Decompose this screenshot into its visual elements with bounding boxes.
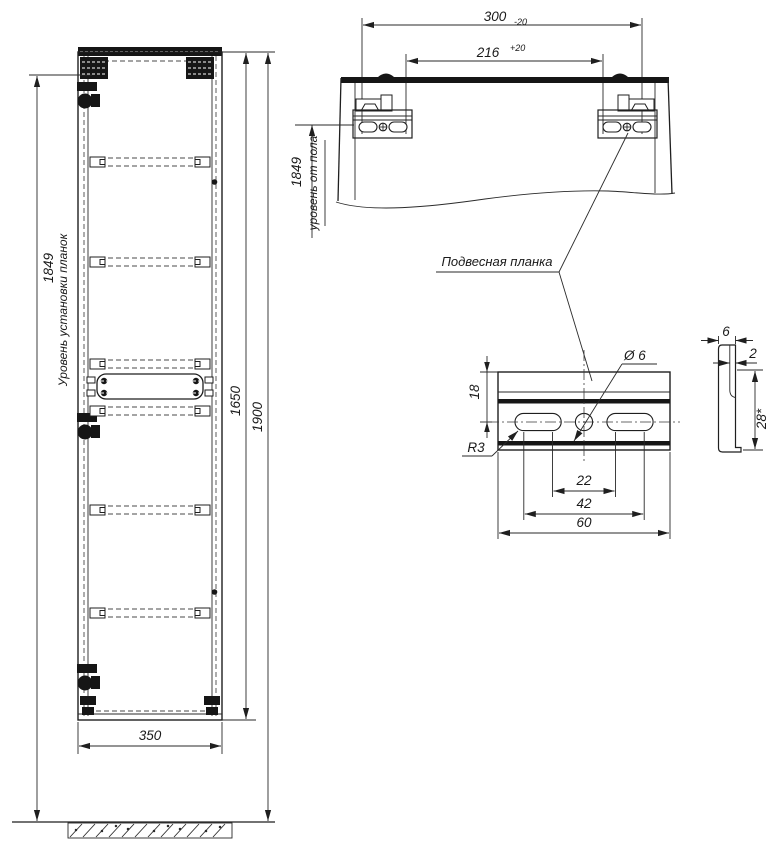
dim-floor-level: 1849 уровень от пола	[289, 125, 354, 238]
dim-cabinet-height: 1650	[222, 52, 275, 720]
plank-side-detail: 6 2 28*	[701, 324, 769, 452]
shelf	[90, 608, 210, 618]
hinge-middle	[77, 413, 100, 440]
inner-span-dim: 216	[476, 45, 500, 60]
leader-to-bracket	[559, 133, 628, 272]
plank-width-dim: 60	[576, 515, 592, 530]
hinge-bottom	[77, 664, 100, 691]
cabinet-top-view: 300 -20 216 +20	[289, 9, 675, 238]
hanging-plank-left	[80, 57, 108, 79]
inner-spacing-dim: 22	[575, 473, 592, 488]
edge-to-holes-dim: 18	[467, 384, 482, 400]
dim-total-height: 1900	[250, 53, 268, 821]
plank-front-detail: 18 R3 Ø 6 22 42	[462, 348, 680, 539]
plank-callout: Подвесная планка	[436, 133, 628, 381]
dim-profile-height: 28*	[737, 370, 769, 450]
cabinet-width-dim: 350	[139, 728, 162, 743]
technical-drawing: 1849 Уровень установки планок 1650 1900 …	[0, 0, 780, 863]
floor	[12, 822, 275, 838]
outer-spacing-dim: 42	[576, 496, 592, 511]
slot-radius-label: R3	[467, 440, 485, 455]
dim-outer-span: 300 -20	[362, 9, 642, 134]
side-wall-left	[338, 78, 355, 201]
leader-to-detail	[559, 272, 592, 381]
shelf	[90, 359, 210, 369]
cabinet-front-view	[77, 47, 222, 720]
inner-span-tolerance: +20	[510, 43, 525, 53]
top-panel	[341, 77, 669, 83]
profile-width-dim: 6	[722, 324, 730, 339]
plank-level-label: Уровень установки планок	[56, 232, 70, 387]
plank-level-dim: 1849	[41, 252, 56, 283]
dim-inner-span: 216 +20	[406, 43, 603, 134]
outer-span-tolerance: -20	[514, 17, 527, 27]
dim-cabinet-width: 350	[78, 722, 222, 754]
dim-edge-to-holes: 18	[467, 356, 498, 438]
break-line	[336, 191, 675, 208]
hanging-plank-right	[186, 57, 214, 79]
total-height-dim: 1900	[250, 401, 265, 432]
bracket-right	[598, 95, 657, 138]
hinge-top	[77, 82, 100, 109]
drawer-unit	[87, 374, 213, 399]
floor-hatch	[68, 823, 232, 838]
plank-callout-label: Подвесная планка	[441, 254, 552, 269]
shelf-pin	[212, 179, 218, 185]
shelf	[90, 406, 210, 416]
shelf	[90, 157, 210, 167]
floor-level-label: уровень от пола	[306, 135, 320, 231]
hole-diameter-label: Ø 6	[623, 348, 646, 363]
shelf	[90, 257, 210, 267]
cabinet-height-dim: 1650	[228, 385, 243, 416]
dim-profile-width: 6	[701, 324, 753, 344]
outer-span-dim: 300	[484, 9, 507, 24]
drawing-sheet: 1849 Уровень установки планок 1650 1900 …	[0, 0, 780, 863]
shelf	[90, 505, 210, 515]
floor-level-dim: 1849	[289, 156, 304, 187]
profile-height-dim: 28*	[754, 408, 769, 430]
profile-thickness-dim: 2	[748, 346, 757, 361]
shelf-pin	[212, 589, 218, 595]
